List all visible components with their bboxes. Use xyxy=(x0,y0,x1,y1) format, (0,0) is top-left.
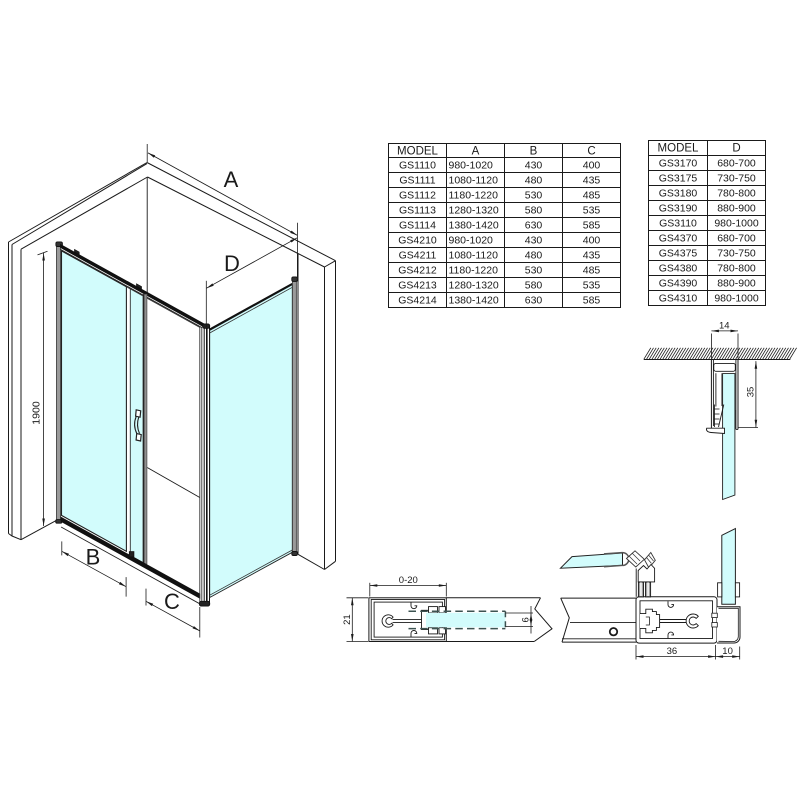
svg-text:580: 580 xyxy=(525,280,543,292)
svg-text:A: A xyxy=(472,145,480,157)
svg-text:C: C xyxy=(164,589,180,614)
svg-text:14: 14 xyxy=(719,320,730,331)
svg-text:GS3110: GS3110 xyxy=(659,218,697,230)
svg-text:880-900: 880-900 xyxy=(717,278,756,290)
svg-text:480: 480 xyxy=(525,250,543,262)
svg-text:36: 36 xyxy=(667,646,678,657)
svg-text:530: 530 xyxy=(525,190,543,202)
svg-text:GS1112: GS1112 xyxy=(399,190,436,202)
svg-text:B: B xyxy=(530,145,538,157)
svg-text:630: 630 xyxy=(525,295,543,307)
svg-text:B: B xyxy=(86,544,101,569)
svg-text:730-750: 730-750 xyxy=(717,173,756,185)
svg-text:980-1000: 980-1000 xyxy=(714,293,759,305)
svg-text:GS4212: GS4212 xyxy=(398,265,437,277)
svg-text:GS1114: GS1114 xyxy=(399,220,436,232)
svg-text:1180-1220: 1180-1220 xyxy=(449,190,499,202)
svg-text:400: 400 xyxy=(583,235,601,247)
svg-text:D: D xyxy=(224,251,240,276)
svg-text:585: 585 xyxy=(583,295,601,307)
svg-text:10: 10 xyxy=(722,646,733,657)
svg-text:530: 530 xyxy=(525,265,543,277)
svg-text:480: 480 xyxy=(525,175,543,187)
svg-text:400: 400 xyxy=(583,160,601,172)
svg-text:780-800: 780-800 xyxy=(717,188,756,200)
svg-text:1900: 1900 xyxy=(31,401,43,425)
svg-text:GS4211: GS4211 xyxy=(399,250,437,262)
svg-text:21: 21 xyxy=(342,614,353,625)
svg-text:1080-1120: 1080-1120 xyxy=(449,175,499,187)
svg-text:GS4390: GS4390 xyxy=(659,278,698,290)
svg-text:980-1020: 980-1020 xyxy=(449,160,494,172)
svg-text:MODEL: MODEL xyxy=(658,143,700,155)
svg-text:GS1113: GS1113 xyxy=(399,205,436,217)
svg-text:6: 6 xyxy=(521,617,532,622)
svg-text:880-900: 880-900 xyxy=(717,203,756,215)
svg-text:MODEL: MODEL xyxy=(397,145,439,157)
svg-text:435: 435 xyxy=(583,250,601,262)
svg-text:435: 435 xyxy=(583,175,601,187)
svg-text:1080-1120: 1080-1120 xyxy=(449,250,499,262)
svg-text:430: 430 xyxy=(525,235,543,247)
svg-text:0-20: 0-20 xyxy=(399,575,418,586)
svg-text:430: 430 xyxy=(525,160,543,172)
svg-text:1180-1220: 1180-1220 xyxy=(449,265,499,277)
svg-text:585: 585 xyxy=(583,220,601,232)
svg-text:GS4310: GS4310 xyxy=(659,293,698,305)
svg-text:GS1111: GS1111 xyxy=(399,175,435,187)
svg-text:GS3190: GS3190 xyxy=(659,203,698,215)
svg-text:580: 580 xyxy=(525,205,543,217)
svg-text:1280-1320: 1280-1320 xyxy=(449,280,499,292)
svg-text:GS3180: GS3180 xyxy=(659,188,698,200)
svg-text:35: 35 xyxy=(746,387,757,398)
svg-text:535: 535 xyxy=(583,280,601,292)
svg-text:680-700: 680-700 xyxy=(717,233,756,245)
svg-text:GS4375: GS4375 xyxy=(659,248,698,260)
svg-text:GS4380: GS4380 xyxy=(659,263,698,275)
svg-text:730-750: 730-750 xyxy=(717,248,756,260)
svg-text:D: D xyxy=(732,143,740,155)
svg-text:1380-1420: 1380-1420 xyxy=(449,220,499,232)
svg-text:980-1000: 980-1000 xyxy=(714,218,759,230)
svg-text:GS3175: GS3175 xyxy=(659,173,698,185)
svg-text:A: A xyxy=(224,167,239,192)
svg-text:485: 485 xyxy=(583,265,601,277)
svg-text:C: C xyxy=(587,145,595,157)
svg-text:GS3170: GS3170 xyxy=(659,158,698,170)
svg-text:1280-1320: 1280-1320 xyxy=(449,205,499,217)
svg-text:GS1110: GS1110 xyxy=(399,160,436,172)
svg-text:GS4213: GS4213 xyxy=(398,280,437,292)
svg-text:630: 630 xyxy=(525,220,543,232)
svg-text:980-1020: 980-1020 xyxy=(449,235,494,247)
svg-text:GS4370: GS4370 xyxy=(659,233,698,245)
svg-text:780-800: 780-800 xyxy=(717,263,756,275)
svg-text:GS4214: GS4214 xyxy=(398,295,437,307)
svg-text:485: 485 xyxy=(583,190,601,202)
svg-text:535: 535 xyxy=(583,205,601,217)
svg-text:1380-1420: 1380-1420 xyxy=(449,295,499,307)
svg-text:680-700: 680-700 xyxy=(717,158,756,170)
svg-text:GS4210: GS4210 xyxy=(398,235,437,247)
